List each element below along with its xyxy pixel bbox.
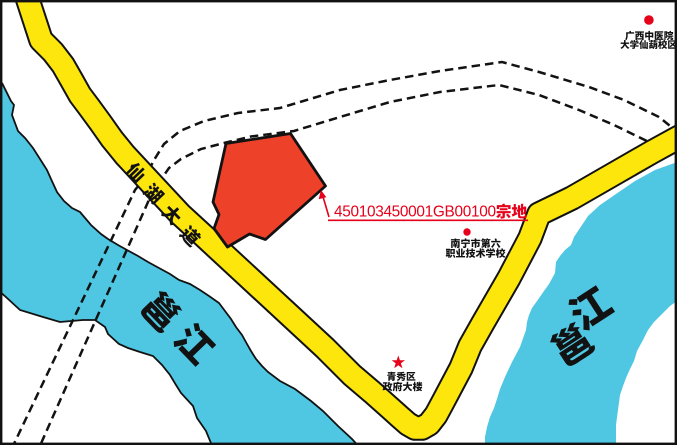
svg-text:450103450001GB00100: 450103450001GB00100 (334, 204, 496, 221)
